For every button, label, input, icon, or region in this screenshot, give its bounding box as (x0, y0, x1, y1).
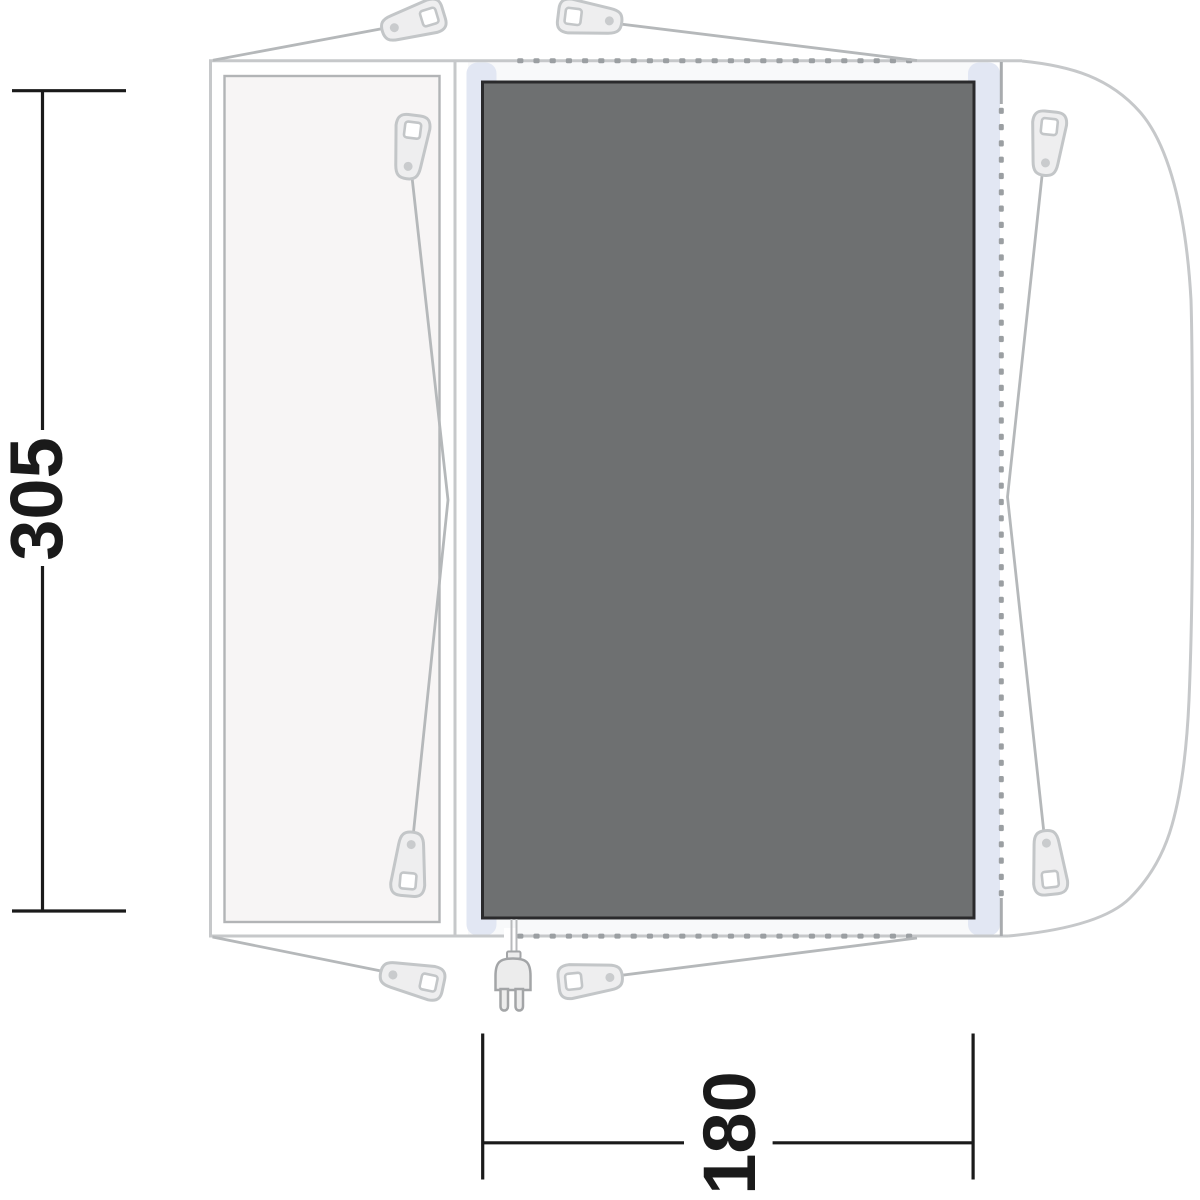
svg-text:180: 180 (688, 1071, 771, 1194)
svg-text:305: 305 (0, 437, 78, 560)
